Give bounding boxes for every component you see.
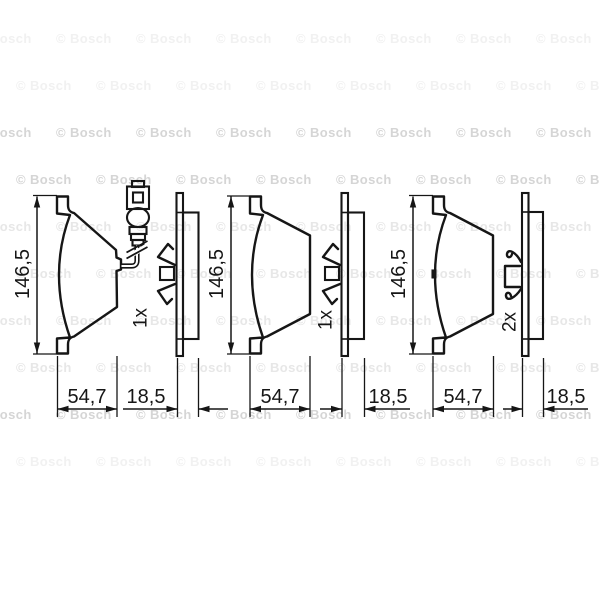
- retaining-clip-arm: [323, 284, 340, 304]
- thickness-dimension-label: 18,5: [127, 386, 166, 408]
- pad-front-view-outline: [433, 197, 493, 354]
- dimension-arrow: [34, 343, 40, 354]
- retaining-clip-arm: [158, 244, 175, 265]
- retaining-clip-arm: [158, 284, 175, 304]
- width-dimension-label: 54,7: [261, 386, 300, 408]
- pad-drawing-2: 146,5 1x 54,7 18,5: [206, 193, 410, 417]
- dimension-arrow: [228, 197, 234, 208]
- pad-locator-nub: [432, 270, 437, 279]
- dimension-arrow: [410, 343, 416, 354]
- wear-sensor: [122, 181, 150, 266]
- retaining-clip-base: [160, 267, 174, 280]
- pad-front-view-outline: [57, 197, 121, 354]
- retaining-clip-base: [325, 267, 339, 280]
- technical-drawing-sheet: © Bosch© Bosch© Bosch© Bosch© Bosch© Bos…: [0, 0, 600, 600]
- dimension-arrow: [483, 406, 494, 412]
- spring-clip-base: [505, 266, 520, 287]
- dimension-arrow: [410, 197, 416, 208]
- dimension-arrow: [34, 197, 40, 208]
- pad-side-view: [158, 193, 199, 356]
- quantity-label: 2x: [500, 311, 521, 332]
- dimension-arrow: [199, 406, 210, 412]
- height-dimension-label: 146,5: [12, 249, 34, 299]
- dimension-arrow: [228, 343, 234, 354]
- spring-clip-arm: [507, 251, 521, 262]
- pad-front-view-outline: [250, 197, 310, 354]
- sensor-grommet: [127, 208, 149, 227]
- dimension-arrow: [167, 406, 178, 412]
- friction-material: [348, 213, 364, 340]
- width-dimension-label: 54,7: [68, 386, 107, 408]
- dimension-arrow: [433, 406, 444, 412]
- width-dimension-label: 54,7: [444, 386, 483, 408]
- pad-drawing-1: 146,5: [12, 181, 228, 417]
- brake-pad-technical-drawing: 146,5: [0, 0, 600, 600]
- sensor-connector-body: [127, 187, 149, 210]
- quantity-label: 1x: [316, 309, 337, 330]
- friction-material: [183, 213, 199, 340]
- pad-drawing-3: 146,5 2x 54,7: [388, 193, 588, 417]
- thickness-dimension-label: 18,5: [369, 386, 408, 408]
- dimension-arrow: [250, 406, 261, 412]
- dimension-arrow: [512, 406, 523, 412]
- sensor-connector-window: [133, 193, 143, 203]
- friction-material: [529, 212, 544, 339]
- spring-clip-arm: [506, 289, 521, 299]
- thickness-dimension-label: 18,5: [547, 386, 586, 408]
- dimension-arrow: [299, 406, 310, 412]
- retaining-clip-arm: [323, 244, 340, 265]
- height-dimension-label: 146,5: [388, 249, 410, 299]
- pad-side-view: [323, 193, 364, 356]
- dimension-arrow: [106, 406, 117, 412]
- dimension-arrow: [331, 406, 342, 412]
- height-dimension-label: 146,5: [206, 249, 228, 299]
- quantity-label: 1x: [131, 307, 152, 328]
